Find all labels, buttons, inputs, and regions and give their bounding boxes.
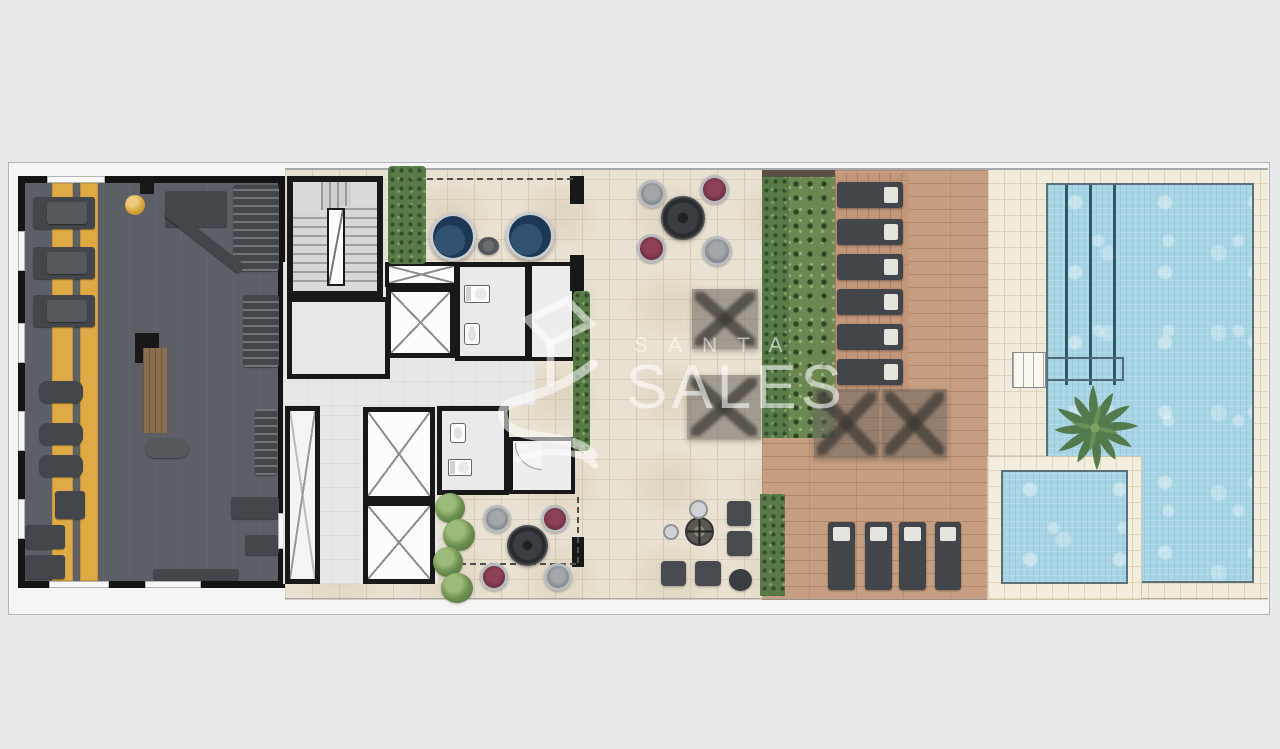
- window: [145, 581, 201, 588]
- projection-line: [427, 178, 573, 180]
- sun-lounger: [837, 182, 903, 208]
- shaded-daybed: [687, 375, 761, 439]
- side-table: [478, 237, 499, 255]
- small-pool: [1001, 470, 1128, 584]
- cable-tower: [233, 185, 279, 271]
- sun-lounger: [837, 219, 903, 245]
- spin-bike: [39, 423, 83, 445]
- shaded-daybed: [692, 289, 758, 349]
- pool-handrail-cap: [1122, 357, 1124, 381]
- round-pouf: [729, 569, 752, 591]
- support-room: [509, 437, 575, 494]
- dining-chair: [637, 234, 666, 263]
- lap-lane-line: [1089, 185, 1092, 385]
- dining-table: [661, 196, 705, 240]
- treadmill: [33, 295, 95, 327]
- wall-stub: [570, 255, 584, 291]
- floorplan-canvas: SANTA SALES: [0, 0, 1280, 749]
- dining-chair: [480, 563, 508, 591]
- pouf: [727, 531, 752, 556]
- treadmill: [33, 247, 95, 279]
- planter-hedge: [573, 291, 590, 451]
- curl-station: [55, 491, 85, 519]
- lap-lane-line: [1065, 185, 1068, 385]
- bench-press: [231, 497, 279, 519]
- sink: [464, 323, 480, 345]
- dining-table: [507, 525, 548, 566]
- pool-steps: [1012, 352, 1046, 388]
- treadmill-deck: [47, 300, 87, 322]
- bush-cluster: [433, 493, 481, 601]
- wall-stub: [570, 176, 584, 204]
- treadmill-deck: [47, 252, 87, 274]
- dumbbell-rack: [255, 409, 277, 475]
- deck-umbrella: [882, 389, 947, 458]
- sun-lounger: [837, 254, 903, 280]
- dining-chair: [638, 180, 666, 208]
- elevator-1: [386, 287, 455, 358]
- spin-bike: [39, 455, 83, 477]
- flat-bench: [245, 535, 279, 555]
- bathroom-2: [437, 406, 509, 495]
- palm-tree: [1046, 381, 1144, 475]
- dining-chair: [700, 175, 729, 204]
- hedge-strip: [760, 494, 785, 596]
- pool-handrail: [1048, 357, 1124, 359]
- window: [49, 581, 109, 588]
- service-room: [528, 262, 576, 361]
- stool: [689, 500, 708, 519]
- projection-line: [577, 497, 579, 563]
- toilet: [448, 459, 472, 476]
- rowing-machine: [25, 525, 65, 549]
- window: [18, 231, 25, 271]
- sun-lounger: [899, 522, 926, 590]
- hedge-strip: [762, 177, 789, 438]
- window: [18, 323, 25, 363]
- elevator-2: [363, 407, 435, 501]
- dining-chair: [483, 505, 511, 533]
- exercise-ball: [125, 195, 145, 215]
- exercise-mat: [145, 438, 189, 458]
- toilet: [464, 285, 490, 303]
- elevator-shaft-small: [385, 262, 458, 287]
- sun-lounger: [935, 522, 961, 590]
- gym-floor-stripe: [80, 183, 98, 581]
- cable-station: [243, 295, 279, 367]
- bench-row: [153, 569, 239, 580]
- round-daybed: [430, 213, 476, 261]
- dining-chair: [541, 505, 569, 533]
- door-swing-arc: [515, 443, 542, 470]
- sun-lounger: [837, 289, 903, 315]
- sun-lounger: [865, 522, 892, 590]
- wood-bench: [143, 348, 167, 433]
- window: [18, 411, 25, 451]
- treadmill: [33, 197, 95, 229]
- sun-lounger: [837, 324, 903, 350]
- service-shaft: [285, 406, 320, 584]
- window: [47, 176, 105, 183]
- stool: [663, 524, 679, 540]
- bush: [441, 573, 473, 603]
- planter-edge: [762, 170, 835, 177]
- deck-umbrella: [814, 389, 879, 458]
- pouf: [661, 561, 686, 586]
- pouf: [695, 561, 721, 586]
- staircase: [287, 176, 383, 297]
- wall-stub: [140, 176, 154, 194]
- rowing-machine: [25, 555, 65, 579]
- dining-chair: [702, 236, 732, 266]
- round-daybed: [506, 212, 554, 260]
- sun-lounger: [837, 359, 903, 385]
- gym-room: [18, 176, 285, 588]
- lap-lane-line: [1113, 185, 1116, 385]
- sink: [450, 423, 466, 443]
- window: [18, 499, 25, 539]
- stair-core: [327, 208, 345, 286]
- elevator-3: [363, 501, 435, 584]
- storage-room: [287, 297, 390, 379]
- bathroom-1: [455, 262, 530, 361]
- spin-bike: [39, 381, 83, 403]
- bbq-grill: [685, 517, 714, 546]
- planter-hedge: [388, 166, 426, 264]
- treadmill-deck: [47, 202, 87, 224]
- dining-chair: [544, 563, 572, 591]
- stair-flight-left: [293, 212, 331, 282]
- pouf: [727, 501, 751, 526]
- sun-lounger: [828, 522, 855, 590]
